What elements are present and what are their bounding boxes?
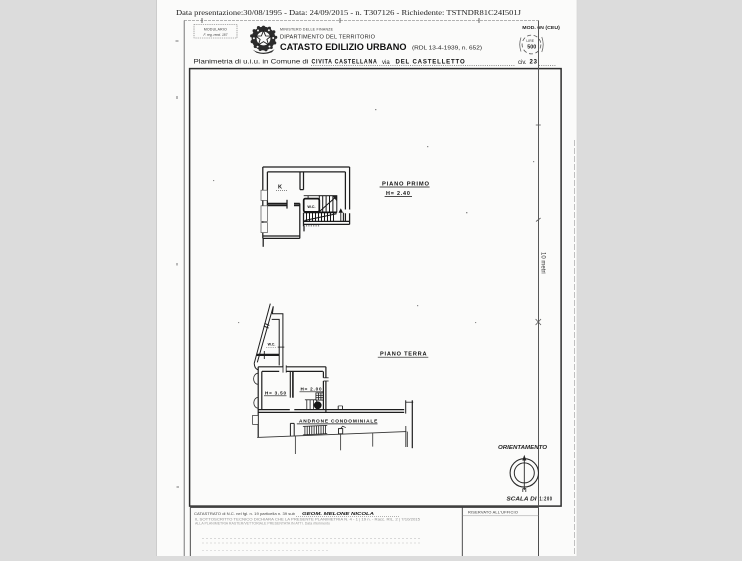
svg-text:CATASTRATO di N.C. nel fgl. n.: CATASTRATO di N.C. nel fgl. n. 19 partic… [194,512,295,516]
svg-text:H= 3.50: H= 3.50 [265,390,287,395]
svg-text:LIRE: LIRE [526,39,534,43]
svg-text:W.C.: W.C. [307,205,315,209]
svg-text:500: 500 [527,44,536,50]
svg-text:RISERVATO ALL'UFFICIO: RISERVATO ALL'UFFICIO [468,509,518,514]
svg-text:MODULARIO: MODULARIO [204,28,227,32]
svg-text:10 metri: 10 metri [540,252,546,274]
svg-text:CIVITA CASTELLANA: CIVITA CASTELLANA [312,60,378,66]
svg-text:H= 2.00: H= 2.00 [301,386,323,391]
svg-text:F. reg. rend. 187: F. reg. rend. 187 [204,33,228,37]
svg-text:MINISTERO DELLE FINANZE: MINISTERO DELLE FINANZE [280,27,334,31]
svg-text:Planimetria di u.i.u. in Comun: Planimetria di u.i.u. in Comune di [194,59,309,66]
svg-text:via: via [382,60,390,66]
svg-text:ORIENTAMENTO: ORIENTAMENTO [498,445,548,451]
svg-text:K: K [278,185,282,191]
svg-text:(RDL 13-4-1939, n. 652): (RDL 13-4-1939, n. 652) [412,46,482,52]
svg-text:W.C.: W.C. [268,342,276,346]
svg-text:1:200: 1:200 [540,497,553,503]
svg-text:civ.: civ. [518,60,527,66]
svg-text:DEL CASTELLETTO: DEL CASTELLETTO [396,60,466,66]
svg-text:PIANO TERRA: PIANO TERRA [380,352,427,358]
svg-text:DIPARTIMENTO DEL TERRITORIO: DIPARTIMENTO DEL TERRITORIO [280,34,376,40]
svg-text:ALLA PLANIMETRIA RASTER/VETTOR: ALLA PLANIMETRIA RASTER/VETTORIALE PRESE… [195,522,330,526]
svg-text:Data presentazione:30/08/1995: Data presentazione:30/08/1995 - Data: 24… [176,8,521,17]
svg-text:ANDRONE CONDOMINIALE: ANDRONE CONDOMINIALE [299,418,378,424]
svg-text:CATASTO EDILIZIO URBANO: CATASTO EDILIZIO URBANO [280,42,407,53]
svg-text:23: 23 [530,59,538,65]
svg-text:MOD. 6N (CEU): MOD. 6N (CEU) [522,25,560,30]
svg-text:SCALA DI: SCALA DI [507,497,537,503]
svg-text:GEOM. MELONE NICOLA: GEOM. MELONE NICOLA [302,511,375,516]
